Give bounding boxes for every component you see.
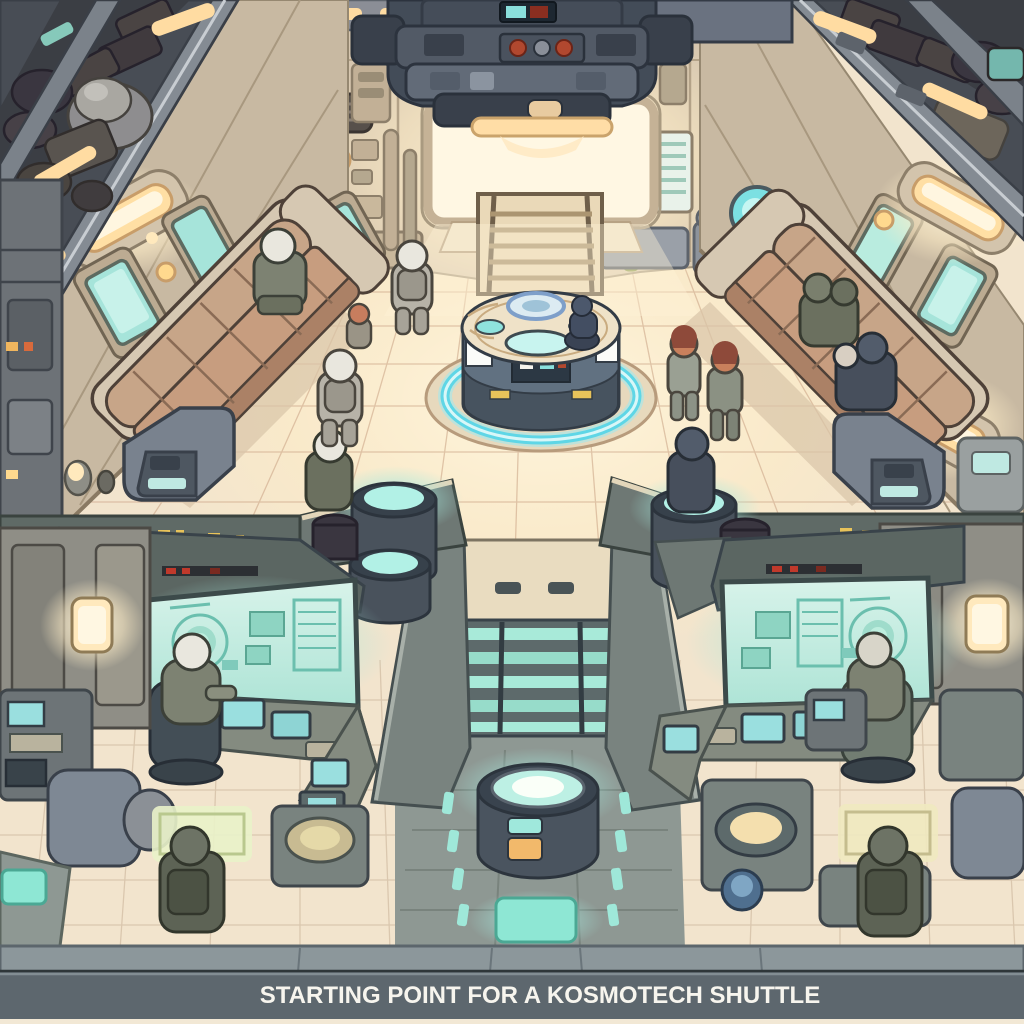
svg-text:STARTING POINT FOR A KOSMOTEC: STARTING POINT FOR A KOSMOTECH SHUTTLE [260, 982, 820, 1009]
